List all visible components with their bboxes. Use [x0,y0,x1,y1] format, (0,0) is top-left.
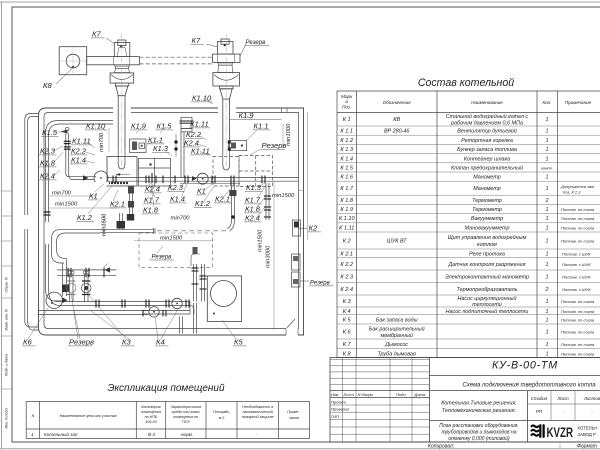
svg-text:1: 1 [546,239,549,245]
svg-text:min700: min700 [99,132,105,152]
svg-text:Ретортная горелка: Ретортная горелка [461,138,513,144]
svg-text:1: 1 [546,175,549,181]
svg-text:Термометр: Термометр [472,207,502,213]
svg-text:К1.5: К1.5 [42,128,58,137]
svg-text:Лист: Лист [556,396,569,401]
svg-text:План расстановки оборудования,: План расстановки оборудования, [439,423,518,429]
svg-text:К2.4: К2.4 [40,172,55,181]
svg-text:Стадия: Стадия [531,396,548,401]
svg-text:помещения по: помещения по [173,415,198,419]
svg-text:1: 1 [546,318,549,324]
svg-text:К7: К7 [92,30,101,39]
svg-text:К 5: К 5 [343,318,352,324]
svg-text:К8: К8 [43,81,52,90]
svg-text:К4: К4 [156,338,165,347]
svg-text:min1500: min1500 [272,193,295,199]
svg-text:Постав. по согла: Постав. по согла [561,318,595,323]
svg-text:теплосети: теплосети [472,302,502,308]
svg-text:ВР 280-46: ВР 280-46 [384,129,409,135]
svg-text:1: 1 [546,138,549,144]
svg-text:min1500: min1500 [55,202,78,208]
svg-text:Дымосос: Дымосос [384,342,408,348]
svg-text:Бак расширительный: Бак расширительный [369,326,425,333]
svg-text:1: 1 [546,117,549,123]
svg-text:К1.5: К1.5 [157,122,173,131]
svg-text:Манометр: Манометр [473,186,501,192]
svg-text:Постав. по согла: Постав. по согла [561,309,595,314]
svg-text:Тепломеханические решения.: Тепломеханические решения. [442,408,516,414]
svg-text:К1.8: К1.8 [143,206,159,215]
svg-text:м 2: м 2 [219,416,225,420]
svg-text:К 1.1: К 1.1 [340,129,353,135]
svg-text:К5: К5 [234,338,243,347]
svg-text:К 1.5: К 1.5 [340,166,354,172]
svg-text:КУ-В-00-ТМ: КУ-В-00-ТМ [492,360,558,372]
svg-text:min1000: min1000 [286,123,292,146]
svg-text:помещения: помещения [141,410,161,414]
svg-text:2: 2 [545,198,549,204]
svg-text:Копировал:: Копировал: [428,444,455,450]
svg-text:К1.11: К1.11 [190,120,209,129]
svg-text:Термометр: Термометр [472,198,502,204]
svg-text:К 2.4: К 2.4 [340,287,353,293]
svg-text:1: 1 [546,129,549,135]
svg-text:Котельный зал: Котельный зал [44,431,78,437]
svg-text:Бак запаса воды: Бак запаса воды [376,318,418,324]
svg-text:-: - [562,409,564,414]
svg-text:Наименование цеха или участка: Наименование цеха или участка [59,414,116,418]
svg-text:Резерв: Резерв [310,281,330,287]
svg-text:ПУЭ: ПУЭ [182,420,190,424]
svg-text:котлом: котлом [477,242,497,248]
svg-text:-: - [591,409,593,414]
svg-text:2: 2 [545,287,549,293]
svg-text:Постав. по согла: Постав. по согла [561,216,595,221]
svg-text:Постав. с ШУК: Постав. с ШУК [562,287,591,292]
svg-text:К1.7: К1.7 [144,196,160,205]
svg-text:К1.8: К1.8 [245,205,261,214]
svg-text:рабочим давлением 0,6 МПа: рабочим давлением 0,6 МПа [450,121,523,127]
svg-text:N докум.: N докум. [358,392,374,397]
svg-text:Дата: Дата [414,392,426,397]
svg-text:К1: К1 [197,187,206,196]
svg-text:К 6: К 6 [343,330,352,336]
svg-text:К 2.2: К 2.2 [340,262,354,268]
svg-text:чания: чания [289,416,299,420]
svg-text:а: а [345,99,348,104]
svg-text:К1: К1 [89,192,98,201]
svg-text:Изм: Изм [331,392,339,397]
svg-text:Электроконтактный манометр: Электроконтактный манометр [445,274,529,281]
svg-text:К 1.11: К 1.11 [339,225,354,231]
svg-text:РП: РП [536,409,543,414]
svg-text:min700: min700 [171,216,191,222]
svg-text:К1.9: К1.9 [131,122,147,131]
svg-text:К 7: К 7 [343,342,352,348]
svg-text:К1.3: К1.3 [246,183,262,192]
svg-text:Инв. N подл.: Инв. N подл. [5,407,9,428]
svg-text:Котельная.Типовые решения.: Котельная.Типовые решения. [441,401,517,407]
svg-text:ШУК ВТ: ШУК ВТ [387,239,407,245]
svg-text:Постав. с ШУК: Постав. с ШУК [562,275,591,280]
svg-text:Реле протока: Реле протока [469,252,505,258]
svg-text:Экспликация помещений: Экспликация помещений [107,383,225,394]
svg-text:К1.4: К1.4 [170,195,185,204]
svg-text:1: 1 [546,330,549,336]
svg-text:1: 1 [546,262,549,268]
svg-text:min1500: min1500 [160,236,183,242]
svg-text:поз. К 2.3: поз. К 2.3 [563,190,581,195]
svg-text:К2.1: К2.1 [110,200,125,209]
svg-text:К2.2: К2.2 [71,147,87,156]
svg-text:К 2.1: К 2.1 [340,252,353,258]
svg-text:Листов: Листов [583,396,600,401]
svg-text:min1500: min1500 [102,213,108,236]
svg-text:Необходимость в: Необходимость в [242,405,273,409]
svg-text:Резерв: Резерв [152,255,172,261]
svg-text:К1.2: К1.2 [77,213,93,222]
svg-text:Постав. по согла: Постав. по согла [561,342,595,347]
svg-text:min3000: min3000 [266,245,272,268]
svg-text:К 3: К 3 [343,299,352,305]
svg-text:Постав. по согла: Постав. по согла [561,299,595,304]
svg-text:Постав. по согла: Постав. по согла [561,207,595,212]
svg-text:пожарной защите: пожарной защите [242,415,274,419]
svg-text:105-03: 105-03 [145,420,157,424]
svg-text:К1.11: К1.11 [72,137,91,146]
svg-text:1: 1 [546,252,549,258]
svg-text:Постав. по согла: Постав. по согла [561,330,595,335]
svg-text:1: 1 [546,156,549,162]
svg-text:К 1.4: К 1.4 [340,156,353,162]
svg-text:Манометр: Манометр [473,175,501,181]
svg-text:Насос подпиточный теплосети: Насос подпиточный теплосети [446,308,529,315]
svg-text:К 1.9: К 1.9 [340,207,353,213]
svg-text:Приме -: Приме - [287,410,301,414]
svg-text:Проверил: Проверил [331,407,350,412]
svg-text:Площадь,: Площадь, [213,410,230,414]
svg-text:Лист: Лист [343,392,355,397]
svg-text:N: N [32,414,35,418]
svg-text:Постав. с ШУК: Постав. с ШУК [562,252,591,257]
svg-text:К 4: К 4 [343,309,351,315]
svg-text:1: 1 [546,186,549,192]
svg-text:К1.10: К1.10 [86,122,106,131]
svg-text:К 1.6: К 1.6 [340,175,354,181]
svg-text:1: 1 [546,207,549,213]
svg-text:Постав. по согла: Постав. по согла [561,239,595,244]
svg-text:min1500: min1500 [258,229,264,252]
svg-text:Мановакуумметр: Мановакуумметр [465,225,510,231]
svg-text:К 2: К 2 [343,239,352,245]
svg-text:1: 1 [546,342,549,348]
svg-text:К1.1: К1.1 [254,122,269,131]
svg-text:компл.: компл. [541,166,553,170]
svg-text:1: 1 [546,299,549,305]
svg-text:К 1.2: К 1.2 [340,138,354,144]
svg-text:Формат: Формат [577,444,597,450]
svg-text:Бункер запаса топлива: Бункер запаса топлива [457,147,517,153]
svg-text:К7: К7 [192,36,201,45]
svg-text:Состав котельной: Состав котельной [418,77,514,89]
svg-text:ЗАВОД Р: ЗАВОД Р [578,432,597,437]
svg-text:норм.: норм. [181,432,193,437]
svg-text:К 8: К 8 [343,351,352,357]
svg-text:К1.4: К1.4 [71,156,86,165]
svg-text:К2: К2 [309,224,318,233]
svg-text:1: 1 [31,432,34,437]
svg-text:К2.3: К2.3 [168,183,184,192]
svg-text:К1.10: К1.10 [192,94,212,103]
svg-text:Контейнер шлака: Контейнер шлака [464,155,510,162]
svg-text:ГИП: ГИП [331,414,339,419]
svg-text:Вакуумметр: Вакуумметр [471,216,503,222]
svg-text:Резерв: Резерв [262,141,287,150]
svg-text:Справ. N: Справ. N [5,277,9,292]
svg-text:Постав. по согла: Постав. по согла [561,225,595,230]
svg-text:Кол.: Кол. [542,100,551,105]
svg-text:1: 1 [546,275,549,281]
svg-text:Обозначение: Обозначение [383,100,412,105]
svg-text:К 1.3: К 1.3 [340,147,354,153]
svg-text:К 1.8: К 1.8 [340,198,354,204]
svg-text:Вентилятор дутьевой: Вентилятор дутьевой [457,128,517,135]
svg-text:Постав. с ШУК: Постав. с ШУК [562,262,591,267]
svg-text:К1.2: К1.2 [195,199,211,208]
svg-text:Щит управления водогрейным: Щит управления водогрейным [448,234,527,241]
svg-text:Датчик контроля разряжения: Датчик контроля разряжения [447,262,525,268]
svg-text:К2.3: К2.3 [40,147,56,156]
svg-text:Труба дымовая: Труба дымовая [377,351,416,357]
svg-text:Категория: Категория [141,405,160,409]
svg-text:К 2.3: К 2.3 [340,275,354,281]
svg-text:К6: К6 [23,338,32,347]
svg-text:К3: К3 [122,338,131,347]
svg-text:К 1.10: К 1.10 [339,216,356,222]
svg-text:Подп.: Подп. [396,392,407,397]
svg-text:по НПБ: по НПБ [145,415,158,419]
svg-text:КОТЕЛЬН: КОТЕЛЬН [578,426,598,431]
svg-text:Поз.: Поз. [342,105,351,110]
svg-text:КВ: КВ [393,117,400,123]
svg-text:-: - [256,432,258,437]
svg-text:Стальной водогрейный котел с: Стальной водогрейный котел с [446,113,529,120]
svg-text:min700: min700 [52,191,72,197]
svg-text:Проект.: Проект. [331,399,347,404]
svg-text:трубопроводов и дымоходов на: трубопроводов и дымоходов на [441,430,516,436]
svg-text:Характеристика: Характеристика [170,405,201,409]
svg-text:1: 1 [546,309,549,315]
svg-text:1: 1 [546,351,549,357]
svg-text:KVZR: KVZR [547,425,574,440]
svg-text:Термопреобразователь: Термопреобразователь [457,287,518,293]
svg-text:1: 1 [546,225,549,231]
svg-text:автоматической: автоматической [243,410,273,414]
svg-text:отметку 0,000 (типовой): отметку 0,000 (типовой) [448,435,510,442]
svg-text:1: 1 [546,147,549,153]
svg-text:среды или класс: среды или класс [172,410,201,414]
svg-text:Допускается зам: Допускается зам [560,184,594,189]
svg-text:Клапан предохранительный: Клапан предохранительный [451,165,523,172]
svg-text:мембранный: мембранный [381,332,413,339]
svg-text:Резерв: Резерв [69,338,94,347]
svg-text:Резерв: Резерв [246,40,266,46]
svg-text:К 1.7: К 1.7 [340,186,354,192]
svg-text:Схема подключения твердотоплив: Схема подключения твердотопливного котла [462,383,596,389]
svg-text:Примечание: Примечание [565,100,592,105]
svg-text:Наименование: Наименование [471,100,503,105]
svg-text:В 4: В 4 [148,432,155,437]
svg-text:1: 1 [546,216,549,222]
svg-text:К 1: К 1 [343,117,351,123]
svg-text:Подп. и дата: Подп. и дата [5,354,9,377]
svg-text:К2.1: К2.1 [215,195,230,204]
svg-text:Взам. инв. N: Взам. инв. N [5,309,9,330]
svg-text:К2.4: К2.4 [245,214,260,223]
svg-text:Насос циркуляционный: Насос циркуляционный [458,295,517,302]
svg-text:Постав. по согла: Постав. по согла [561,351,595,356]
